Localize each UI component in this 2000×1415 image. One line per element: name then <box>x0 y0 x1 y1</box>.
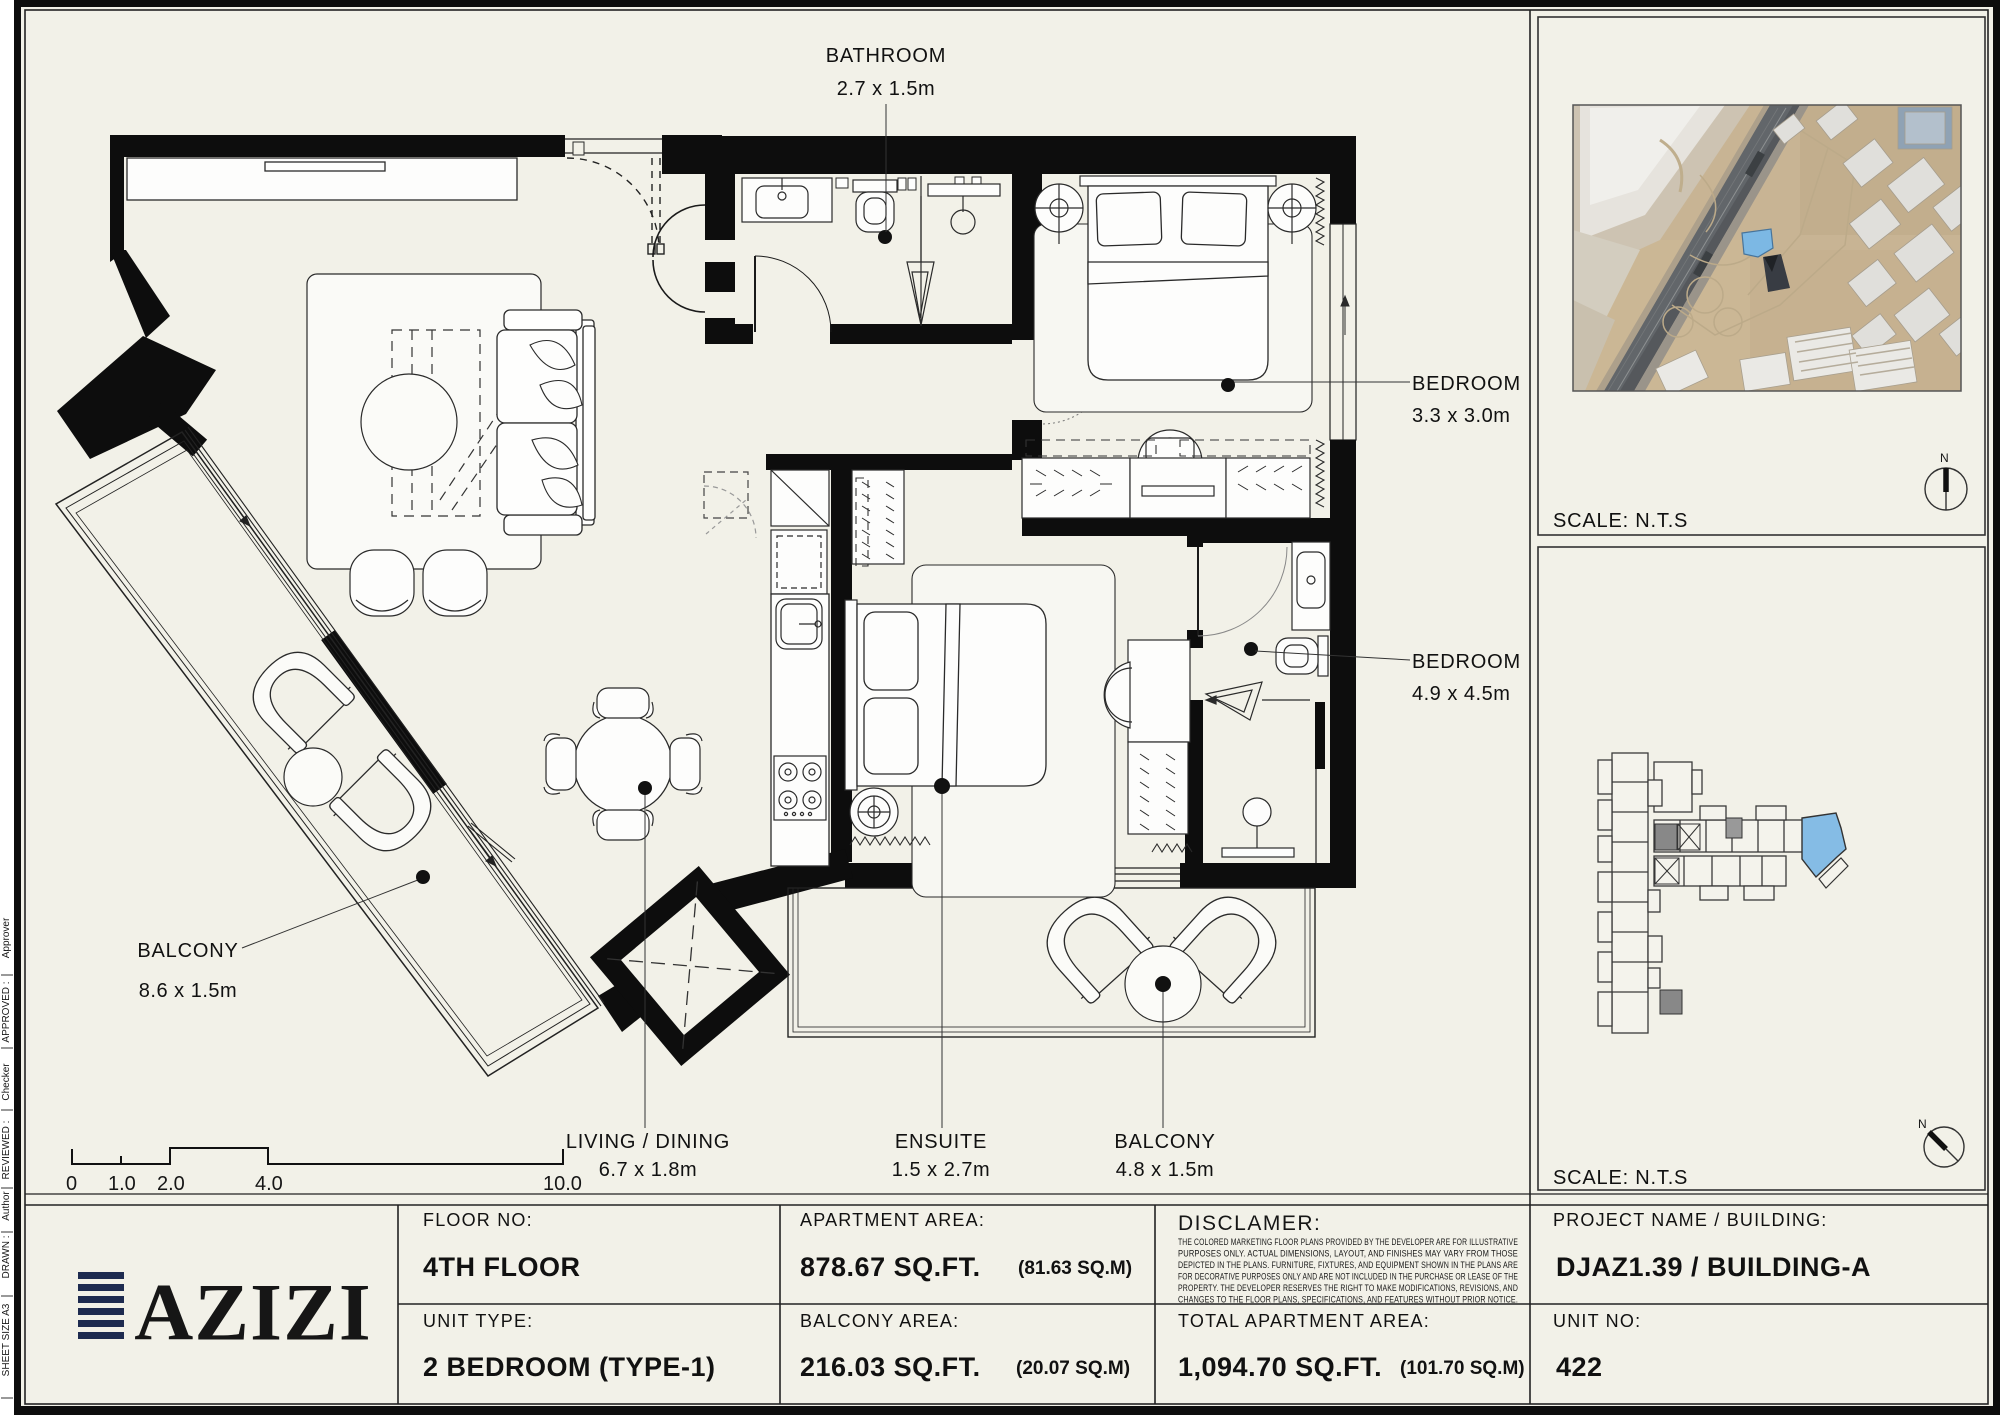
svg-text:SCALE: N.T.S: SCALE: N.T.S <box>1553 1167 1688 1189</box>
svg-text:UNIT TYPE:: UNIT TYPE: <box>423 1311 533 1331</box>
svg-text:4.9 x 4.5m: 4.9 x 4.5m <box>1412 683 1510 705</box>
svg-text:2.0: 2.0 <box>157 1173 185 1195</box>
svg-text:UNIT NO:: UNIT NO: <box>1553 1311 1641 1331</box>
svg-text:(20.07 SQ.M): (20.07 SQ.M) <box>1016 1358 1130 1379</box>
svg-text:0: 0 <box>66 1173 77 1195</box>
svg-text:N: N <box>1918 1117 1927 1131</box>
svg-text:Checker: Checker <box>1 1063 12 1101</box>
svg-text:APPROVED :: APPROVED : <box>1 981 12 1042</box>
svg-text:PROJECT NAME / BUILDING:: PROJECT NAME / BUILDING: <box>1553 1210 1828 1230</box>
svg-text:CHANGES TO THE FLOOR PLANS, SP: CHANGES TO THE FLOOR PLANS, SPECIFICATIO… <box>1178 1295 1518 1305</box>
svg-text:BALCONY AREA:: BALCONY AREA: <box>800 1311 959 1331</box>
svg-text:4.0: 4.0 <box>255 1173 283 1195</box>
svg-text:3.3 x 3.0m: 3.3 x 3.0m <box>1412 405 1510 427</box>
svg-text:BALCONY: BALCONY <box>1114 1131 1215 1153</box>
svg-text:FLOOR NO:: FLOOR NO: <box>423 1210 533 1230</box>
svg-text:N: N <box>1940 451 1949 465</box>
svg-text:216.03 SQ.FT.: 216.03 SQ.FT. <box>800 1352 981 1382</box>
svg-text:2.7 x 1.5m: 2.7 x 1.5m <box>837 78 935 100</box>
svg-text:PURPOSES ONLY. ACTUAL DIMENSIO: PURPOSES ONLY. ACTUAL DIMENSIONS, LAYOUT… <box>1178 1249 1518 1259</box>
svg-text:6.7 x 1.8m: 6.7 x 1.8m <box>599 1159 697 1181</box>
svg-text:Approver: Approver <box>1 917 12 958</box>
svg-text:PROPERTY. THE DEVELOPER RESERV: PROPERTY. THE DEVELOPER RESERVES THE RIG… <box>1178 1283 1518 1293</box>
svg-text:DJAZ1.39 / BUILDING-A: DJAZ1.39 / BUILDING-A <box>1556 1252 1871 1282</box>
svg-text:1.5 x 2.7m: 1.5 x 2.7m <box>892 1159 990 1181</box>
svg-text:AZIZI: AZIZI <box>134 1267 372 1358</box>
svg-text:8.6 x 1.5m: 8.6 x 1.5m <box>139 980 237 1002</box>
svg-text:APARTMENT AREA:: APARTMENT AREA: <box>800 1210 985 1230</box>
svg-text:LIVING / DINING: LIVING / DINING <box>566 1131 730 1153</box>
svg-text:DEPICTED IN THE PLANS. FURNITU: DEPICTED IN THE PLANS. FURNITURE, FIXTUR… <box>1178 1260 1518 1270</box>
svg-text:BEDROOM: BEDROOM <box>1412 373 1521 395</box>
svg-text:878.67 SQ.FT.: 878.67 SQ.FT. <box>800 1252 981 1282</box>
svg-text:SCALE: N.T.S: SCALE: N.T.S <box>1553 510 1688 532</box>
svg-text:10.0: 10.0 <box>543 1173 582 1195</box>
svg-text:Author: Author <box>1 1191 12 1221</box>
svg-text:FOR DECORATIVE PURPOSES ONLY A: FOR DECORATIVE PURPOSES ONLY AND ARE NOT… <box>1178 1272 1518 1282</box>
svg-text:(101.70 SQ.M): (101.70 SQ.M) <box>1400 1358 1525 1379</box>
svg-text:(81.63 SQ.M): (81.63 SQ.M) <box>1018 1258 1132 1279</box>
svg-text:DISCLAMER:: DISCLAMER: <box>1178 1212 1321 1235</box>
svg-text:BATHROOM: BATHROOM <box>826 45 946 67</box>
svg-text:1.0: 1.0 <box>108 1173 136 1195</box>
svg-text:ENSUITE: ENSUITE <box>895 1131 987 1153</box>
svg-text:2 BEDROOM (TYPE-1): 2 BEDROOM (TYPE-1) <box>423 1352 716 1382</box>
svg-text:SHEET SIZE A3: SHEET SIZE A3 <box>1 1303 12 1376</box>
svg-text:1,094.70 SQ.FT.: 1,094.70 SQ.FT. <box>1178 1352 1382 1382</box>
svg-text:DRAWN :: DRAWN : <box>1 1236 12 1279</box>
svg-text:422: 422 <box>1556 1352 1603 1382</box>
svg-text:REVIEWED :: REVIEWED : <box>1 1121 12 1180</box>
svg-text:THE COLORED MARKETING FLOOR PL: THE COLORED MARKETING FLOOR PLANS PROVID… <box>1178 1237 1518 1247</box>
svg-text:4TH FLOOR: 4TH FLOOR <box>423 1252 581 1282</box>
svg-text:BEDROOM: BEDROOM <box>1412 651 1521 673</box>
svg-text:4.8 x 1.5m: 4.8 x 1.5m <box>1116 1159 1214 1181</box>
svg-text:TOTAL APARTMENT AREA:: TOTAL APARTMENT AREA: <box>1178 1311 1430 1331</box>
svg-text:BALCONY: BALCONY <box>137 940 238 962</box>
